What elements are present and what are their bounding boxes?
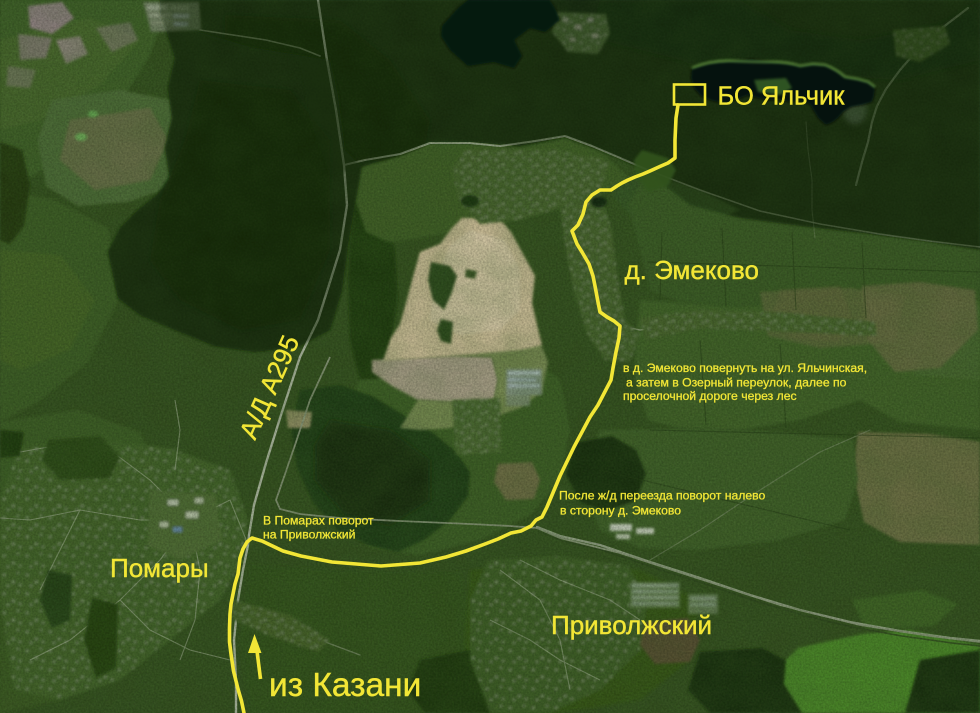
svg-text:а затем в Озерный переулок, да: а затем в Озерный переулок, далее по	[626, 375, 847, 389]
svg-text:из Казани: из Казани	[269, 667, 421, 704]
svg-text:проселочной дороге через лес: проселочной дороге через лес	[623, 389, 797, 403]
svg-text:на Приволжский: на Приволжский	[263, 528, 355, 542]
svg-text:БО Яльчик: БО Яльчик	[718, 83, 846, 111]
svg-text:в д. Эмеково повернуть на ул.: в д. Эмеково повернуть на ул. Яльчинская…	[623, 361, 867, 375]
svg-text:В Помарах поворот: В Помарах поворот	[263, 514, 374, 528]
svg-text:Приволжский: Приволжский	[551, 610, 712, 640]
svg-text:После ж/д переезда поворот нал: После ж/д переезда поворот налево	[559, 489, 765, 503]
svg-text:д. Эмеково: д. Эмеково	[625, 255, 759, 285]
svg-text:Помары: Помары	[110, 553, 209, 583]
svg-text:в сторону д. Эмеково: в сторону д. Эмеково	[560, 503, 681, 517]
